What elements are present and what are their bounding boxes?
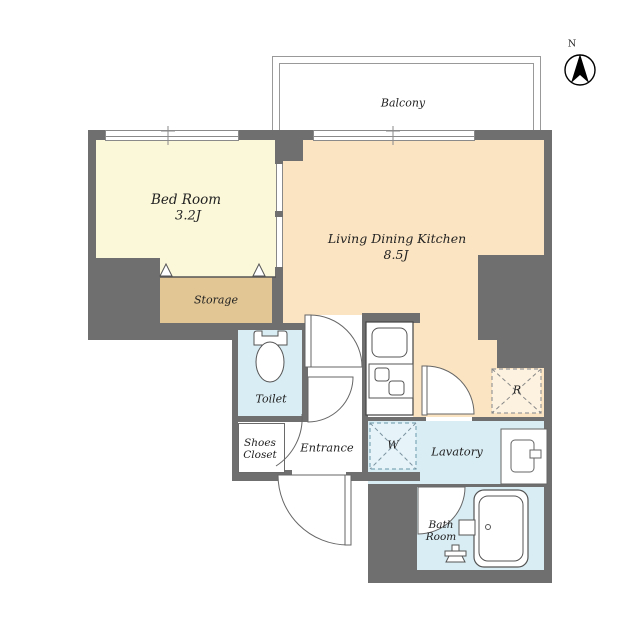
lavatory-label: Lavatory [431,445,482,458]
compass-icon [565,54,595,85]
storage-opening [160,264,276,277]
compass-north-label: N [568,40,576,51]
door-ldk-hall-icon [305,315,362,367]
window-tick-icon [161,126,400,145]
entrance-label: Entrance [300,441,353,454]
kitchen-counter-icon [366,322,413,415]
bathroom-label-line2: Room [426,531,457,543]
toilet-label: Toilet [255,394,286,407]
bathroom-label-line1: Bath [429,519,454,531]
washbasin-icon [501,429,547,484]
floor-plan: Balcony Bed Room 3.2J Living Dining Kitc… [0,0,640,640]
bedroom-label: Bed Room [151,193,221,209]
refrigerator-label: R [513,385,521,398]
shoes-closet-label-line1: Shoes [244,437,276,449]
bathroom-label: Bath Room [426,519,457,543]
ldk-size-label: 8.5J [384,248,409,262]
door-hall-entrance-icon [308,377,353,422]
washer-label: W [387,440,398,453]
bathtub-icon [459,490,528,567]
shoes-closet-label: Shoes Closet [243,437,277,461]
sliding-partition [275,160,283,277]
toilet-icon [254,331,287,382]
door-kitchen-lavatory-icon [422,366,474,415]
door-toilet-icon [276,414,302,466]
shoes-closet-label-line2: Closet [243,449,277,461]
door-entrance-icon [278,475,351,545]
plan-linework [0,0,640,640]
bath-faucet-icon [445,545,466,562]
bedroom-size-label: 3.2J [175,210,201,225]
storage-label: Storage [194,295,238,308]
ldk-label: Living Dining Kitchen [328,232,466,246]
balcony-label: Balcony [381,98,425,111]
